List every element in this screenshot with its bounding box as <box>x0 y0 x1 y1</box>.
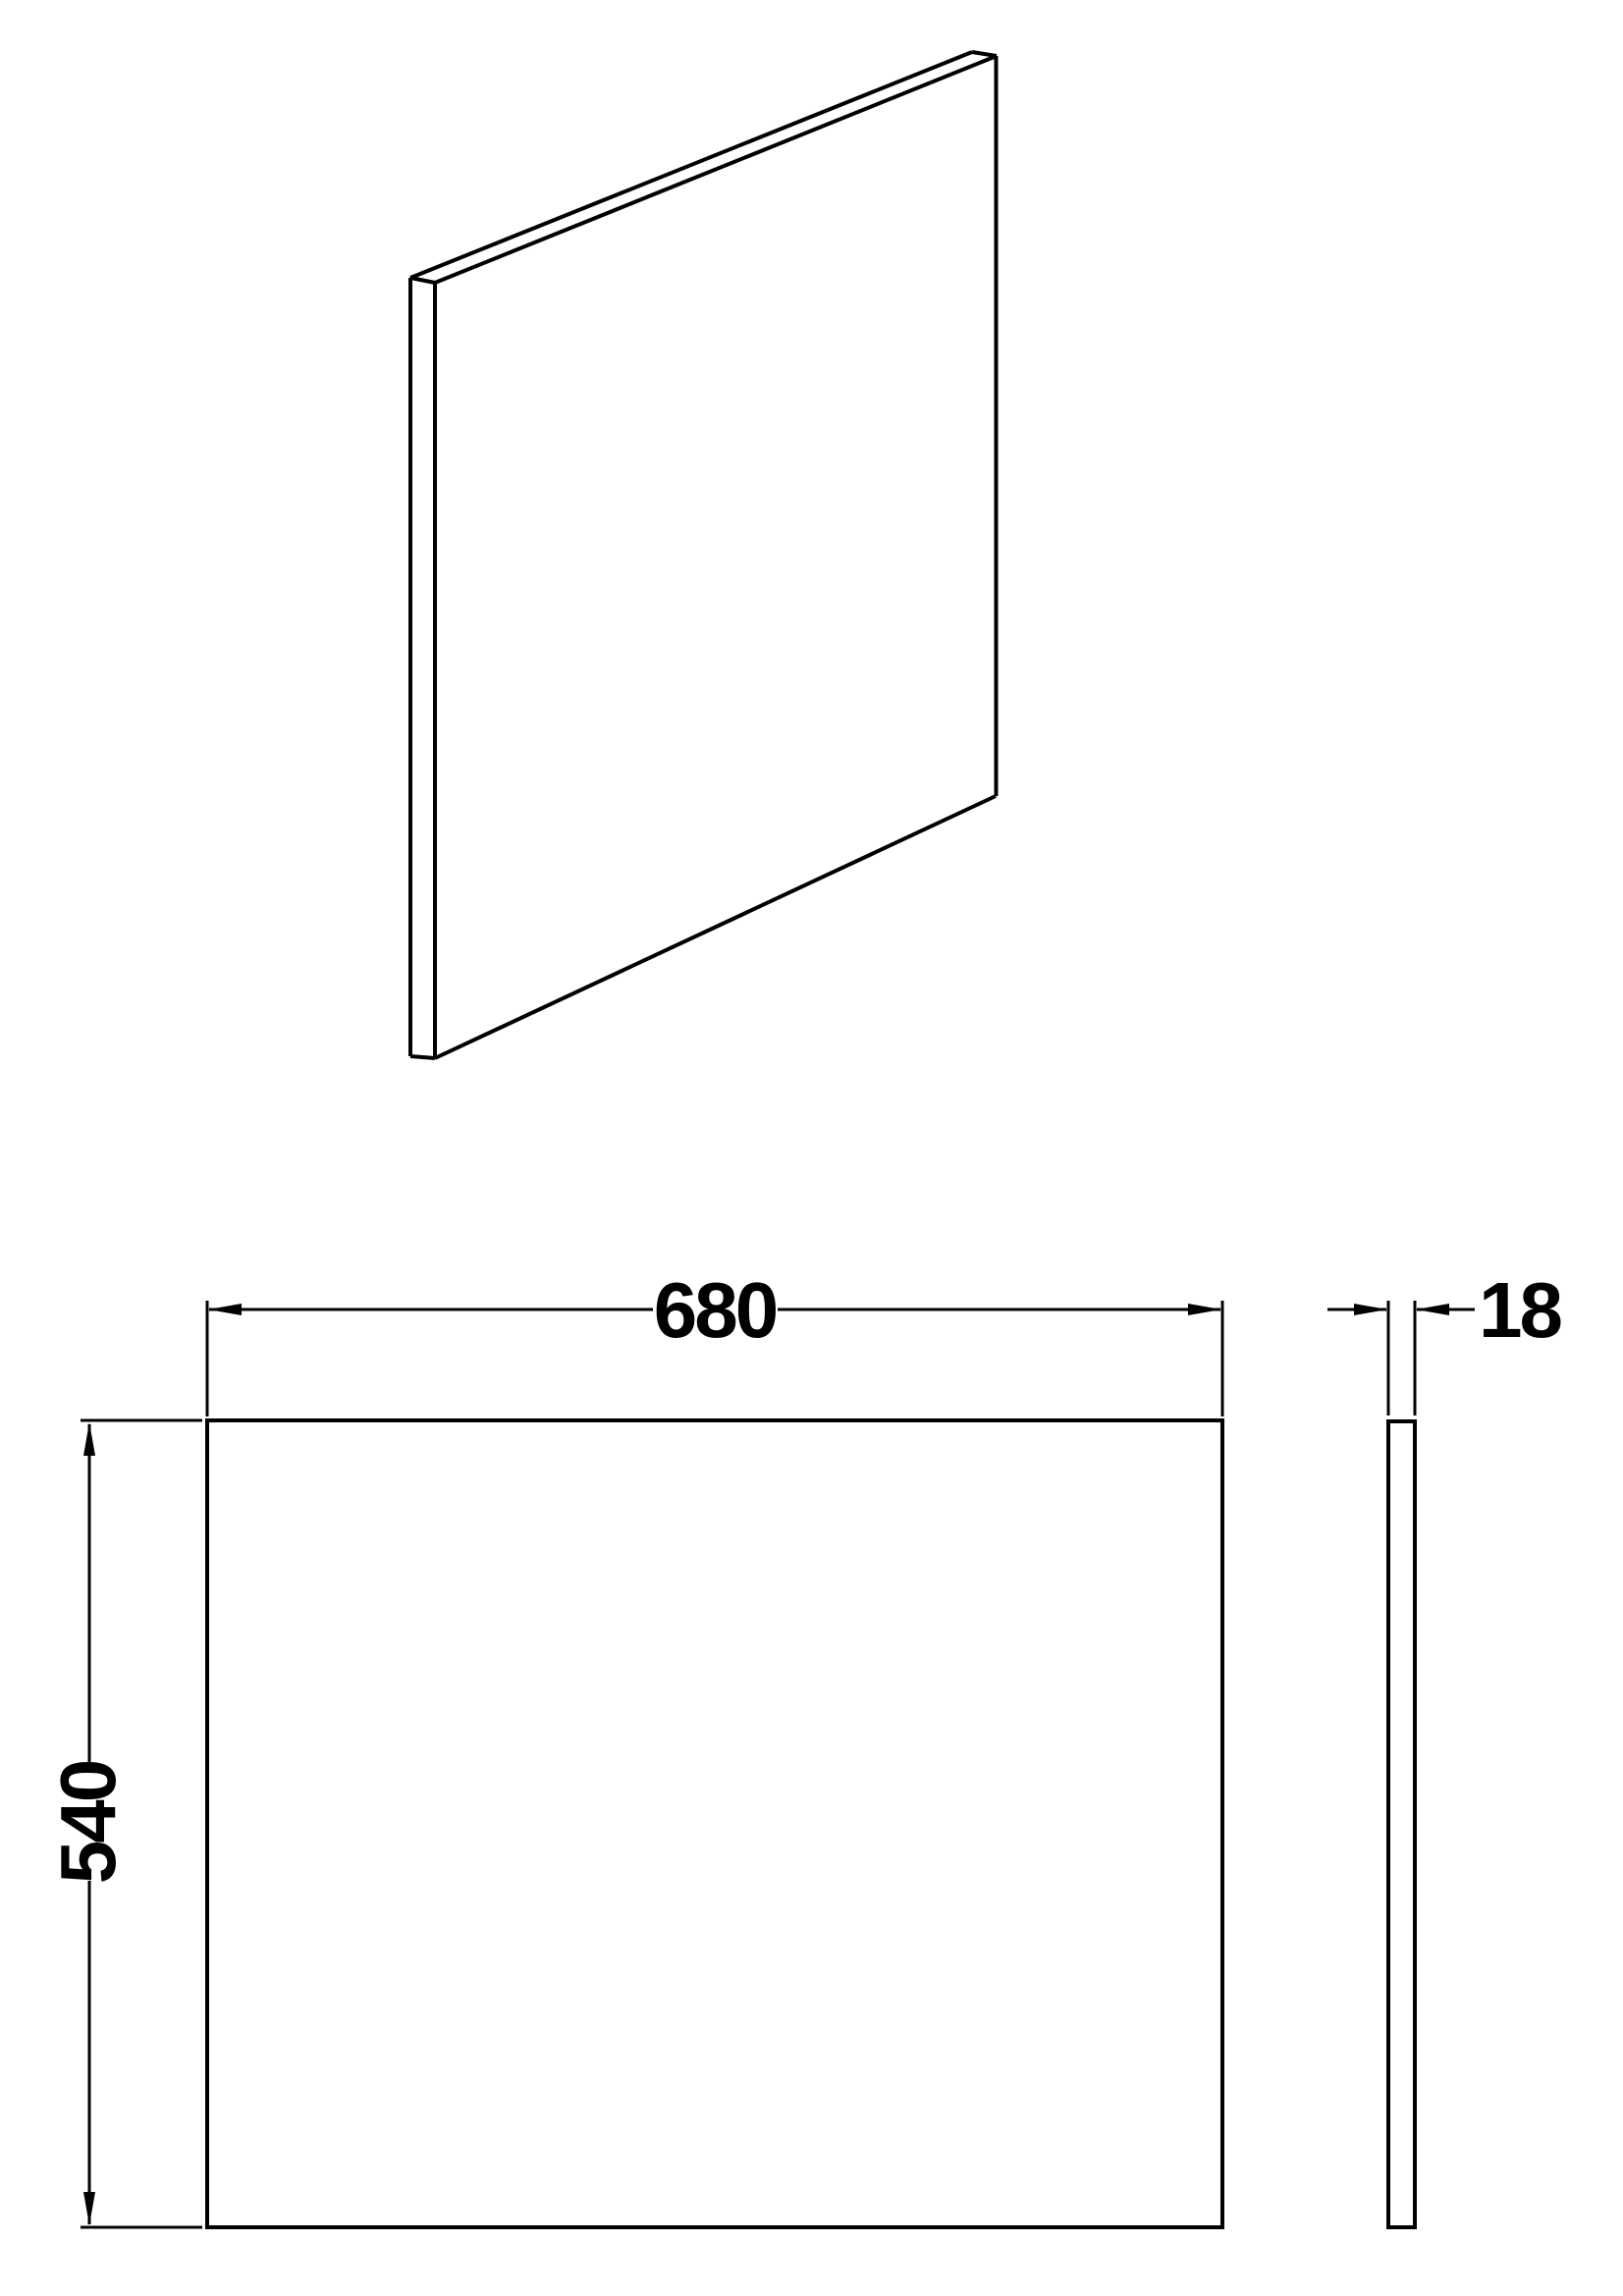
iso-bottom-edge <box>435 796 996 1058</box>
technical-drawing-panel: 680 540 18 <box>0 0 1623 2296</box>
isometric-panel-view <box>410 52 997 1058</box>
width-dim-label: 680 <box>654 1266 777 1354</box>
width-dimension: 680 <box>207 1266 1222 1416</box>
height-dim-arrow-bottom <box>83 2192 95 2225</box>
front-view <box>207 1420 1222 2227</box>
width-dim-arrow-right <box>1188 1304 1221 1315</box>
side-view-outline <box>1388 1421 1415 2227</box>
side-view <box>1388 1421 1415 2227</box>
height-dim-arrow-top <box>83 1422 95 1456</box>
height-dimension: 540 <box>44 1420 202 2227</box>
iso-top-left-edge <box>410 278 435 283</box>
iso-bottom-left-edge <box>410 1056 435 1058</box>
iso-top-right-edge <box>972 52 997 56</box>
thickness-dim-label: 18 <box>1479 1266 1561 1354</box>
iso-front-top-edge <box>435 56 997 283</box>
iso-back-top-edge <box>410 52 972 278</box>
height-dim-label: 540 <box>44 1761 132 1884</box>
thickness-dim-arrow-right <box>1416 1304 1449 1315</box>
front-view-outline <box>207 1420 1222 2227</box>
thickness-dim-arrow-left <box>1354 1304 1387 1315</box>
width-dim-arrow-left <box>208 1304 242 1315</box>
thickness-dimension: 18 <box>1327 1266 1561 1415</box>
